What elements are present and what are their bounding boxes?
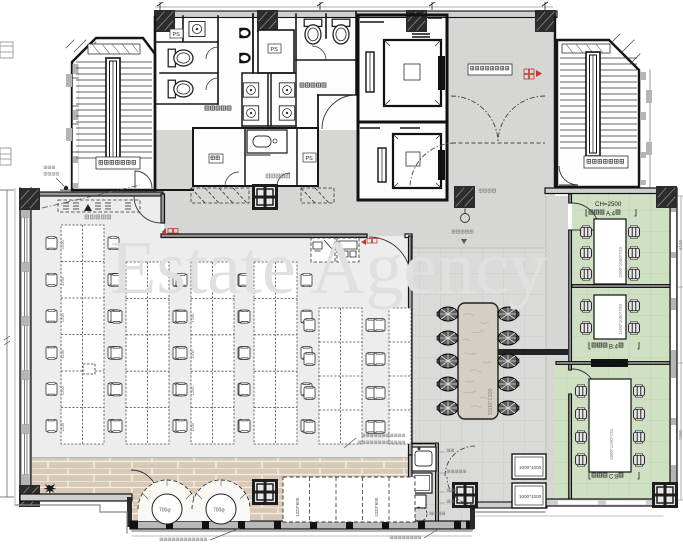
svg-text:1200: 1200 [60, 313, 65, 323]
svg-text:1200: 1200 [190, 422, 195, 432]
svg-text:B:4: B:4 [609, 345, 619, 351]
svg-text:1333*600: 1333*600 [374, 497, 379, 517]
svg-text:1500*1000*720: 1500*1000*720 [618, 246, 623, 278]
svg-text:6100: 6100 [678, 239, 683, 250]
svg-text:PS: PS [271, 47, 279, 53]
svg-text:A:4: A:4 [606, 212, 616, 218]
svg-text:700φ: 700φ [159, 508, 171, 514]
svg-text:PS: PS [173, 32, 181, 38]
svg-text:1500*1000*720: 1500*1000*720 [618, 303, 623, 335]
svg-text:PS: PS [306, 156, 314, 162]
svg-text:7300: 7300 [678, 429, 683, 440]
svg-text:1200: 1200 [190, 386, 195, 396]
svg-text:1200: 1200 [190, 313, 195, 323]
svg-text:2800*1200*720: 2800*1200*720 [609, 428, 614, 460]
svg-text:5500*1300: 5500*1300 [488, 388, 494, 415]
svg-text:1200: 1200 [60, 386, 65, 396]
svg-text:Estate Agency: Estate Agency [110, 226, 547, 310]
svg-text:1000*1000: 1000*1000 [519, 494, 542, 499]
svg-text:1200: 1200 [60, 276, 65, 286]
svg-text:1333*600: 1333*600 [295, 497, 300, 517]
svg-text:1200: 1200 [190, 349, 195, 359]
svg-text:1000*1000: 1000*1000 [519, 465, 542, 470]
svg-text:1200: 1200 [60, 422, 65, 432]
svg-text:1200: 1200 [60, 240, 65, 250]
svg-text:C:8: C:8 [609, 475, 619, 481]
svg-text:1200: 1200 [60, 349, 65, 359]
svg-text:CH=2500: CH=2500 [595, 201, 622, 208]
svg-text:700φ: 700φ [213, 508, 225, 514]
